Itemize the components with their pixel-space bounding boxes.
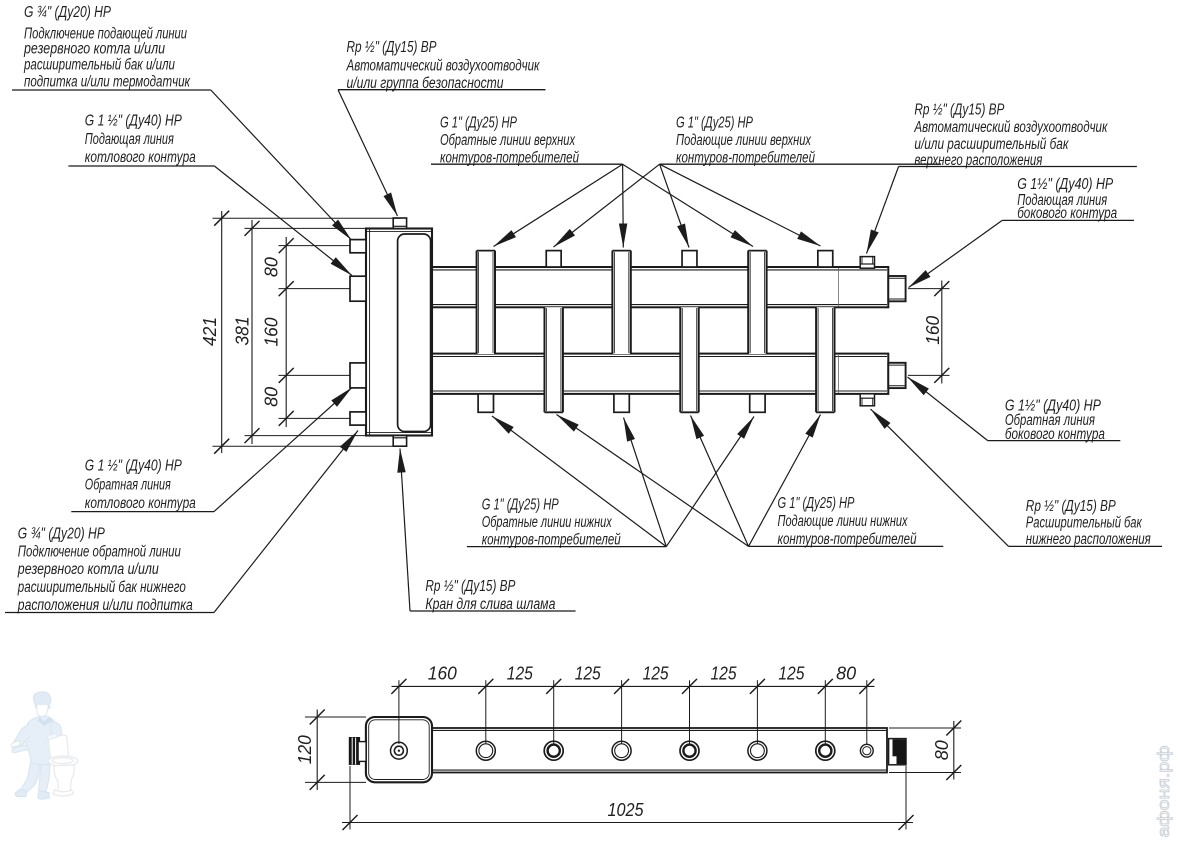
svg-text:G 1" (Ду25) НР: G 1" (Ду25) НР <box>676 115 753 132</box>
svg-text:подпитка и/или термодатчик: подпитка и/или термодатчик <box>24 74 191 91</box>
svg-text:160: 160 <box>262 318 282 347</box>
svg-text:80: 80 <box>836 663 857 684</box>
svg-text:Расширительный бак: Расширительный бак <box>1026 515 1142 532</box>
svg-text:контуров-потребителей: контуров-потребителей <box>778 531 917 548</box>
svg-text:Rp ½" (Ду15) ВР: Rp ½" (Ду15) ВР <box>1026 498 1116 515</box>
svg-text:125: 125 <box>643 663 670 684</box>
svg-text:G 1 ½" (Ду40) НР: G 1 ½" (Ду40) НР <box>85 458 183 475</box>
svg-text:бокового контура: бокового контура <box>1017 205 1117 222</box>
svg-text:Кран для слива шлама: Кран для слива шлама <box>425 596 555 613</box>
svg-text:G 1½" (Ду40) НР: G 1½" (Ду40) НР <box>1017 176 1114 193</box>
svg-text:421: 421 <box>200 317 220 346</box>
svg-text:1025: 1025 <box>608 799 645 820</box>
svg-text:котлового контура: котлового контура <box>85 495 196 512</box>
svg-text:381: 381 <box>233 317 253 346</box>
svg-text:Rp ½" (Ду15) ВР: Rp ½" (Ду15) ВР <box>347 39 437 56</box>
svg-text:Rp ½" (Ду15) ВР: Rp ½" (Ду15) ВР <box>914 102 1004 119</box>
svg-text:125: 125 <box>507 663 534 684</box>
svg-text:расположения и/или подпитка: расположения и/или подпитка <box>17 597 193 614</box>
svg-text:резервного котла и/или: резервного котла и/или <box>17 561 159 578</box>
svg-text:G 1 ½" (Ду40) НР: G 1 ½" (Ду40) НР <box>85 113 183 130</box>
svg-text:125: 125 <box>778 663 805 684</box>
svg-text:Rp ½" (Ду15) ВР: Rp ½" (Ду15) ВР <box>425 578 515 595</box>
svg-text:160: 160 <box>923 316 943 345</box>
svg-text:Подающие линии верхних: Подающие линии верхних <box>676 132 812 149</box>
svg-text:80: 80 <box>262 257 282 277</box>
svg-text:G ¾" (Ду20) НР: G ¾" (Ду20) НР <box>24 4 112 21</box>
svg-text:G 1" (Ду25) НР: G 1" (Ду25) НР <box>778 495 855 512</box>
svg-text:расширительный бак нижнего: расширительный бак нижнего <box>17 579 186 596</box>
svg-text:нижнего расположения: нижнего расположения <box>1026 531 1151 548</box>
svg-text:125: 125 <box>711 663 738 684</box>
svg-text:Обратная линия: Обратная линия <box>85 477 171 494</box>
svg-text:резервного котла и/или: резервного котла и/или <box>23 41 165 58</box>
svg-text:Подключение обратной линии: Подключение обратной линии <box>18 543 181 560</box>
svg-text:160: 160 <box>428 663 458 684</box>
svg-text:125: 125 <box>575 663 602 684</box>
svg-text:Обратные линии нижних: Обратные линии нижних <box>482 514 613 531</box>
svg-text:Автоматический воздухоотводчик: Автоматический воздухоотводчик <box>914 119 1108 136</box>
svg-text:80: 80 <box>262 387 282 407</box>
svg-text:G 1" (Ду25) НР: G 1" (Ду25) НР <box>482 497 559 514</box>
svg-text:расширительный бак и/или: расширительный бак и/или <box>23 57 175 74</box>
svg-text:Автоматический воздухоотводчик: Автоматический воздухоотводчик <box>346 58 540 75</box>
svg-text:и/или расширительный бак: и/или расширительный бак <box>914 136 1069 153</box>
svg-text:афоня.рф: афоня.рф <box>1154 745 1173 837</box>
svg-text:G ¾" (Ду20) НР: G ¾" (Ду20) НР <box>18 526 106 543</box>
svg-text:120: 120 <box>294 735 315 765</box>
svg-text:котлового контура: котлового контура <box>85 149 196 166</box>
svg-text:80: 80 <box>932 740 952 760</box>
svg-text:Обратные линии верхних: Обратные линии верхних <box>440 132 576 149</box>
svg-text:G 1" (Ду25) НР: G 1" (Ду25) НР <box>440 115 517 132</box>
svg-text:Подающие линии нижних: Подающие линии нижних <box>778 513 909 530</box>
svg-text:Подающая линия: Подающая линия <box>85 131 174 148</box>
